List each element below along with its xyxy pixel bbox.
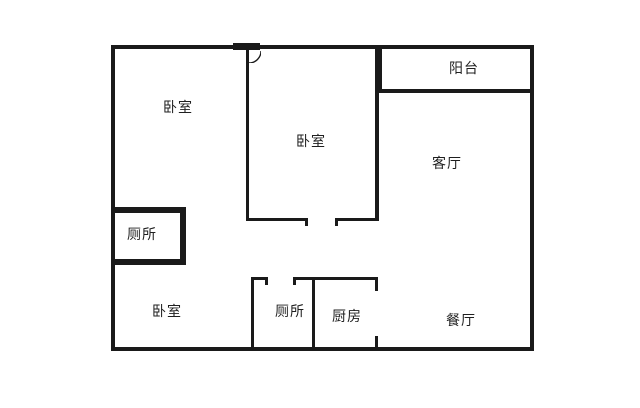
toilet-lower-wall-left (251, 277, 254, 351)
outer-wall-right (530, 45, 534, 351)
room-label-living-room: 客厅 (432, 153, 462, 173)
room-label-kitchen: 厨房 (332, 306, 362, 326)
room-label-dining-room: 餐厅 (446, 310, 476, 330)
outer-wall-top (111, 45, 534, 49)
toilet-upper-wall-top (112, 207, 186, 213)
door-header-mark (233, 43, 260, 50)
kitchen-wall-right-upper (375, 277, 378, 291)
bedroom-middle-wall-bottom-a (246, 218, 308, 221)
room-label-toilet-upper: 厕所 (127, 224, 157, 244)
outer-wall-bottom (111, 347, 534, 351)
bedroom-middle-door-jamb-a (305, 218, 308, 226)
room-label-toilet-lower: 厕所 (275, 301, 305, 321)
room-label-bedroom-bottom: 卧室 (152, 301, 182, 321)
kitchen-wall-left (312, 277, 315, 351)
room-label-bedroom-top-left: 卧室 (163, 97, 193, 117)
toilet-lower-door-jamb-a (265, 277, 268, 285)
toilet-upper-wall-bottom (114, 259, 186, 265)
kitchen-wall-top (293, 277, 378, 280)
bedroom-middle-wall-left (246, 49, 249, 221)
bedroom-middle-wall-bottom-b (335, 218, 378, 221)
balcony-wall-left (379, 49, 382, 93)
living-room-wall-left (375, 47, 379, 221)
toilet-upper-wall-right (180, 207, 186, 265)
outer-wall-left (111, 45, 115, 351)
bedroom-middle-door-jamb-b (335, 218, 338, 226)
kitchen-wall-right-lower (375, 336, 378, 351)
balcony-wall-bottom (379, 89, 530, 93)
floor-plan: 卧室 卧室 阳台 客厅 厕所 卧室 厕所 厨房 餐厅 (0, 0, 640, 408)
room-label-balcony: 阳台 (449, 58, 479, 78)
room-label-bedroom-middle: 卧室 (296, 131, 326, 151)
door-swing-arc-icon (248, 50, 261, 63)
